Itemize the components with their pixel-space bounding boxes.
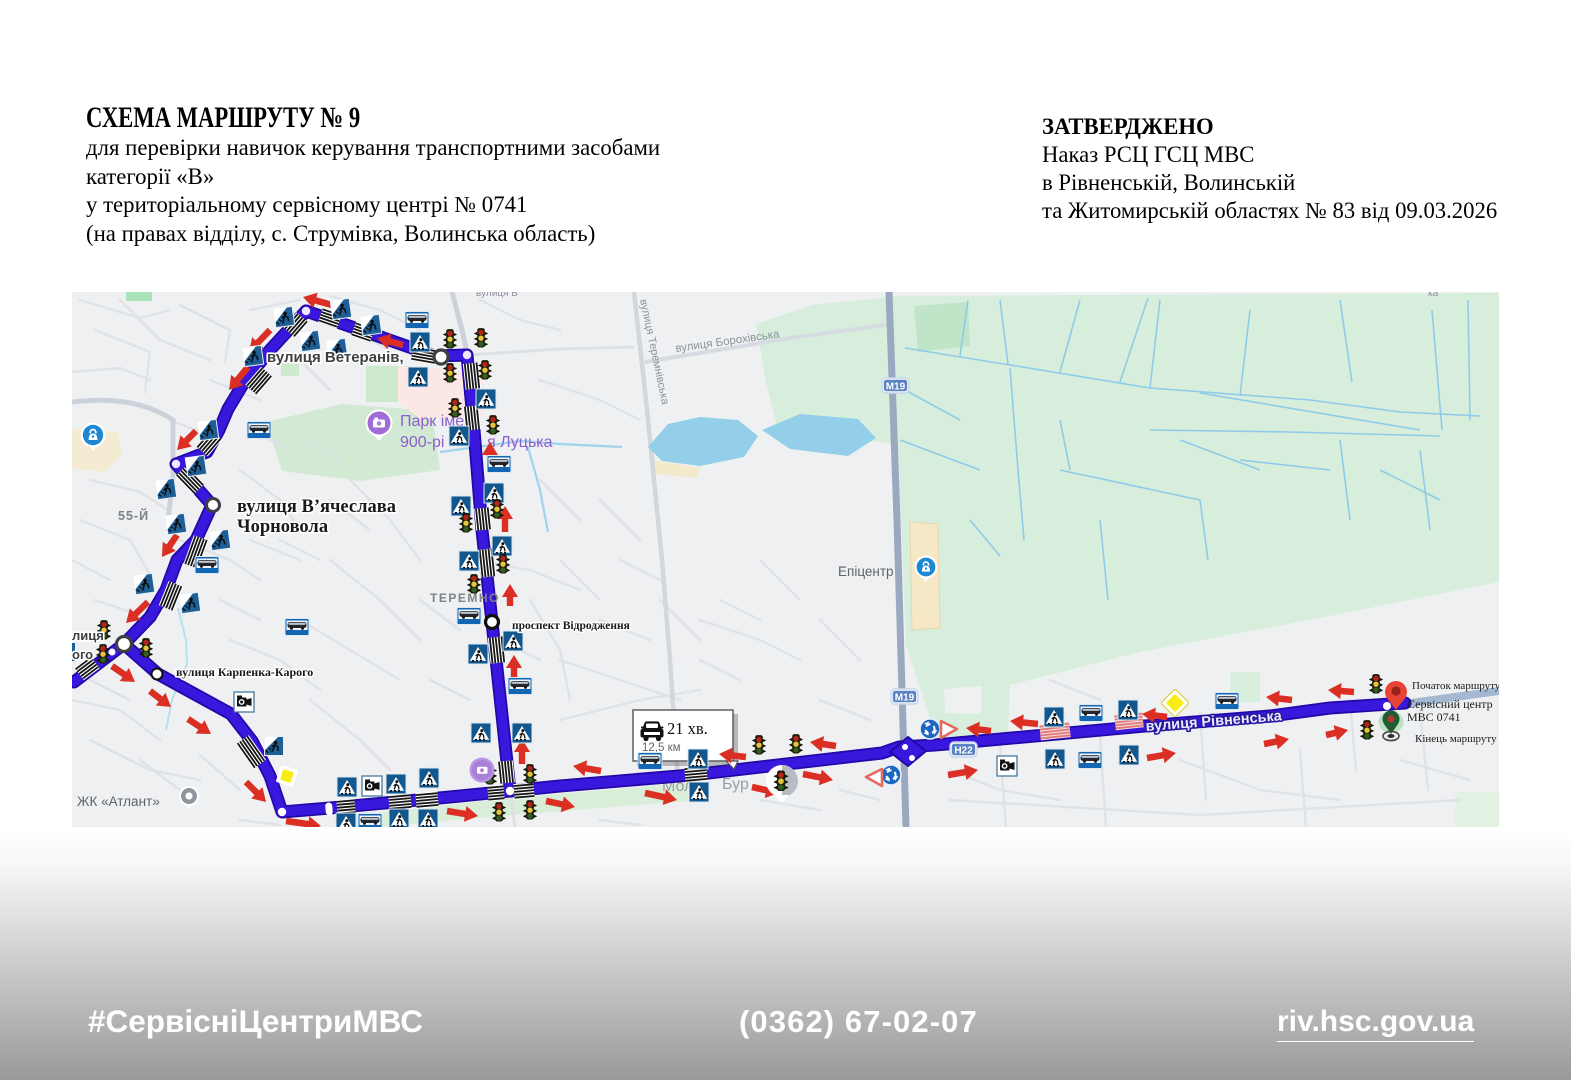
svg-text:Кінець маршруту: Кінець маршруту xyxy=(1415,733,1497,745)
svg-text:55-Й: 55-Й xyxy=(118,508,149,523)
svg-text:Епіцентр: Епіцентр xyxy=(838,564,894,579)
svg-text:вулиця Карпенка-Карого: вулиця Карпенка-Карого xyxy=(176,665,313,679)
svg-text:МВС 0741: МВС 0741 xyxy=(1407,710,1461,724)
svg-text:я Луцька: я Луцька xyxy=(487,434,553,451)
svg-text:вулиця Б: вулиця Б xyxy=(476,292,518,299)
svg-text:Чорновола: Чорновола xyxy=(237,517,328,537)
svg-text:ка: ка xyxy=(1428,292,1439,299)
svg-text:вулиця Ветеранів,: вулиця Ветеранів, xyxy=(267,349,404,366)
svg-text:проспект Відродження: проспект Відродження xyxy=(512,620,630,632)
svg-text:Початок маршруту: Початок маршруту xyxy=(1412,680,1499,692)
svg-text:900-рі: 900-рі xyxy=(400,434,444,451)
svg-text:вулиця В’ячеслава: вулиця В’ячеслава xyxy=(237,497,396,517)
svg-text:М19: М19 xyxy=(886,382,906,393)
svg-text:Бур: Бур xyxy=(722,776,749,793)
svg-text:лиця: лиця xyxy=(72,628,104,643)
svg-text:ТЕРЕМНО: ТЕРЕМНО xyxy=(430,591,500,605)
svg-text:ЖК «Атлант»: ЖК «Атлант» xyxy=(77,794,160,809)
svg-text:ого: ого xyxy=(72,647,93,662)
svg-text:Н22: Н22 xyxy=(954,746,973,757)
svg-text:Сервісний центр: Сервісний центр xyxy=(1407,697,1493,711)
svg-text:М19: М19 xyxy=(895,693,915,704)
svg-text:21 хв.: 21 хв. xyxy=(667,719,708,738)
